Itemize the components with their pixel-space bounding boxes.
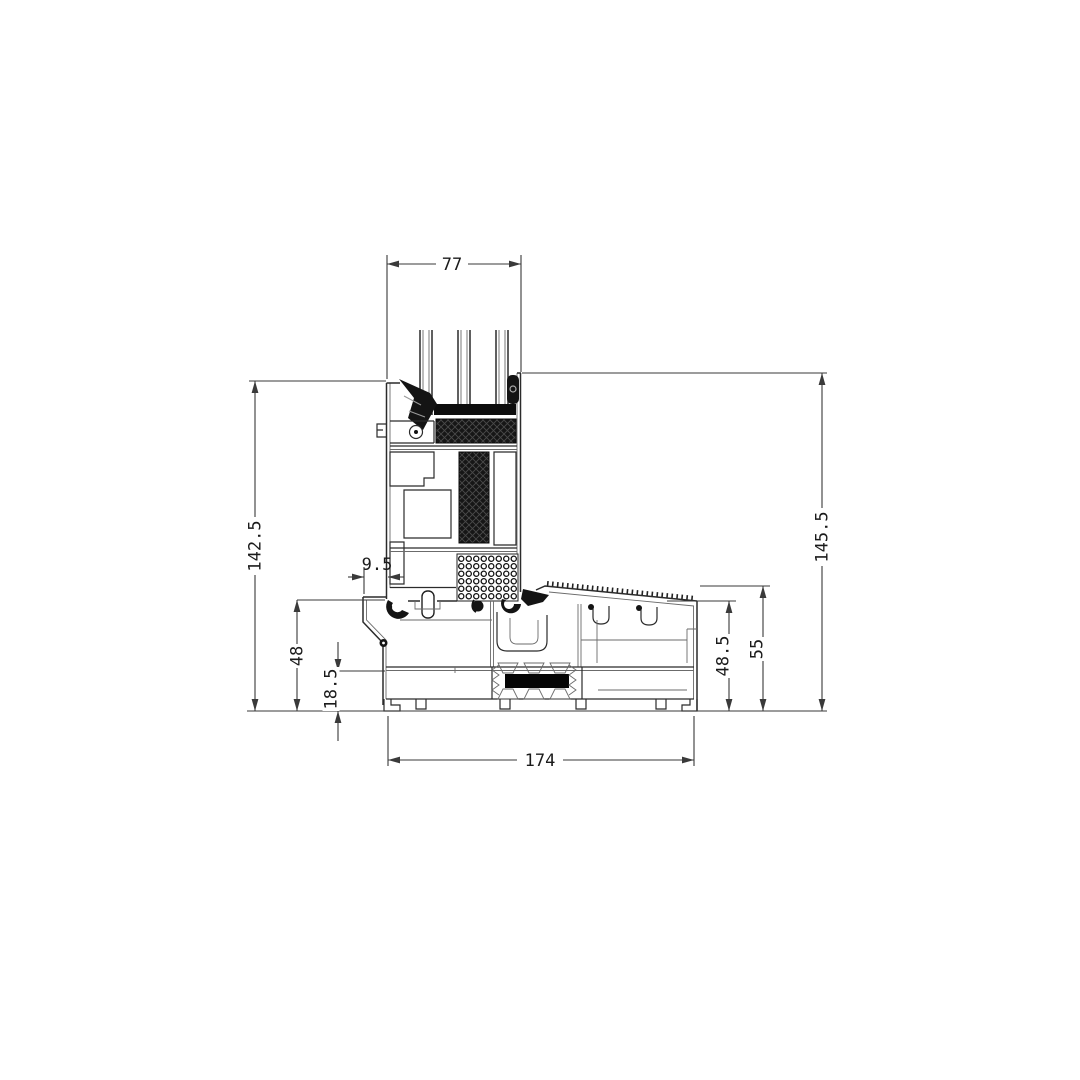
dim-right-height: 145.5: [522, 373, 833, 711]
serrated-slope: [547, 584, 696, 599]
mounting-feet: [384, 699, 697, 711]
glass-pane: [458, 330, 470, 415]
base-connector: [492, 663, 582, 699]
dim-top-width: 77: [387, 255, 521, 379]
setting-block: [436, 419, 516, 443]
insulation-foam-block: [457, 554, 518, 601]
dim-label: 174: [525, 751, 556, 771]
drawing-canvas: 77 142.5 145.5: [0, 0, 1080, 1080]
dim-label: 55: [748, 639, 768, 659]
gasket-groove: [593, 606, 609, 624]
glazing-gasket-right: [507, 375, 519, 404]
dim-label: 77: [442, 255, 462, 275]
sash-chamber: [390, 452, 434, 486]
glass-pane: [496, 330, 508, 415]
glazing-edge-seal: [434, 404, 516, 415]
dim-left-height: 142.5: [246, 381, 387, 711]
dim-sill-right-outer-height: 55: [700, 586, 770, 711]
base-gasket-bar: [505, 674, 569, 688]
gasket: [386, 600, 409, 619]
thermal-break-column: [459, 452, 489, 543]
dimension-annotations: 77 142.5 145.5: [246, 255, 833, 771]
dim-label: 48: [288, 646, 308, 666]
dim-label: 48.5: [714, 636, 734, 677]
dim-label: 142.5: [246, 520, 266, 571]
sill-frame: [363, 584, 697, 712]
dim-sill-right-inner-height: 48.5: [667, 601, 736, 711]
center-gasket-arrow: [521, 589, 549, 606]
profile-section: [363, 330, 697, 711]
sash-chamber: [494, 452, 516, 545]
technical-drawing: 77 142.5 145.5: [0, 0, 1080, 1080]
hook-tab: [377, 424, 387, 437]
dim-label: 145.5: [813, 511, 833, 562]
dim-label: 18.5: [322, 669, 342, 710]
drain-channel: [497, 612, 547, 651]
dim-label: 9.5: [362, 555, 393, 575]
dim-sill-lower-height: 18.5: [322, 642, 386, 741]
sash-chamber: [404, 490, 451, 538]
dim-lip-offset: 9.5: [348, 555, 404, 594]
dim-overall-width: 174: [388, 716, 694, 771]
gasket-groove: [641, 607, 657, 625]
gasket-upstand: [422, 591, 434, 618]
